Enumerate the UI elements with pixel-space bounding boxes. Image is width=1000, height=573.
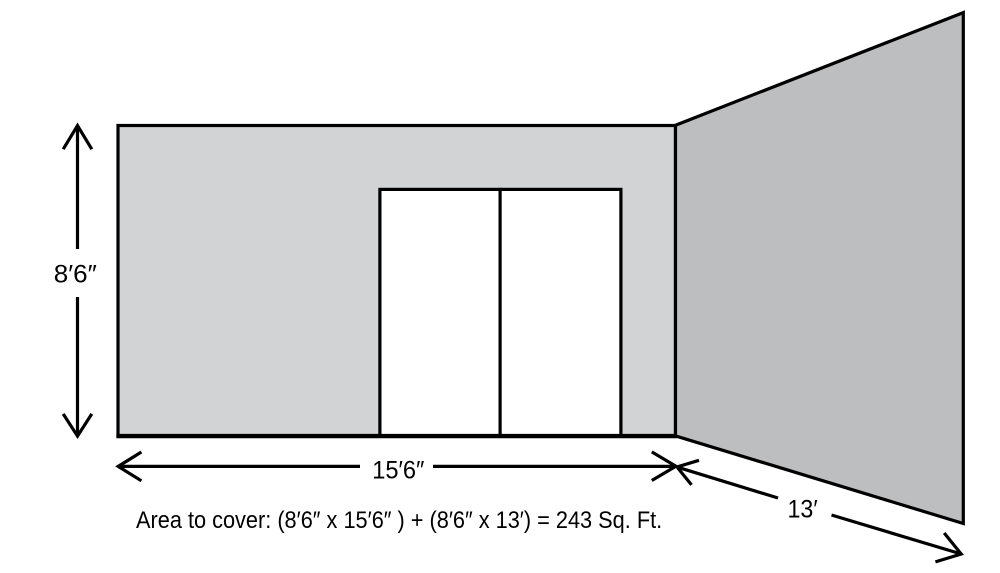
- svg-text:13′: 13′: [788, 495, 818, 523]
- svg-text:8′6″: 8′6″: [54, 260, 97, 288]
- svg-text:Area to cover: (8′6″ x 15′6″ ): Area to cover: (8′6″ x 15′6″ ) + (8′6″ x…: [136, 507, 662, 534]
- svg-text:15′6″: 15′6″: [372, 457, 424, 485]
